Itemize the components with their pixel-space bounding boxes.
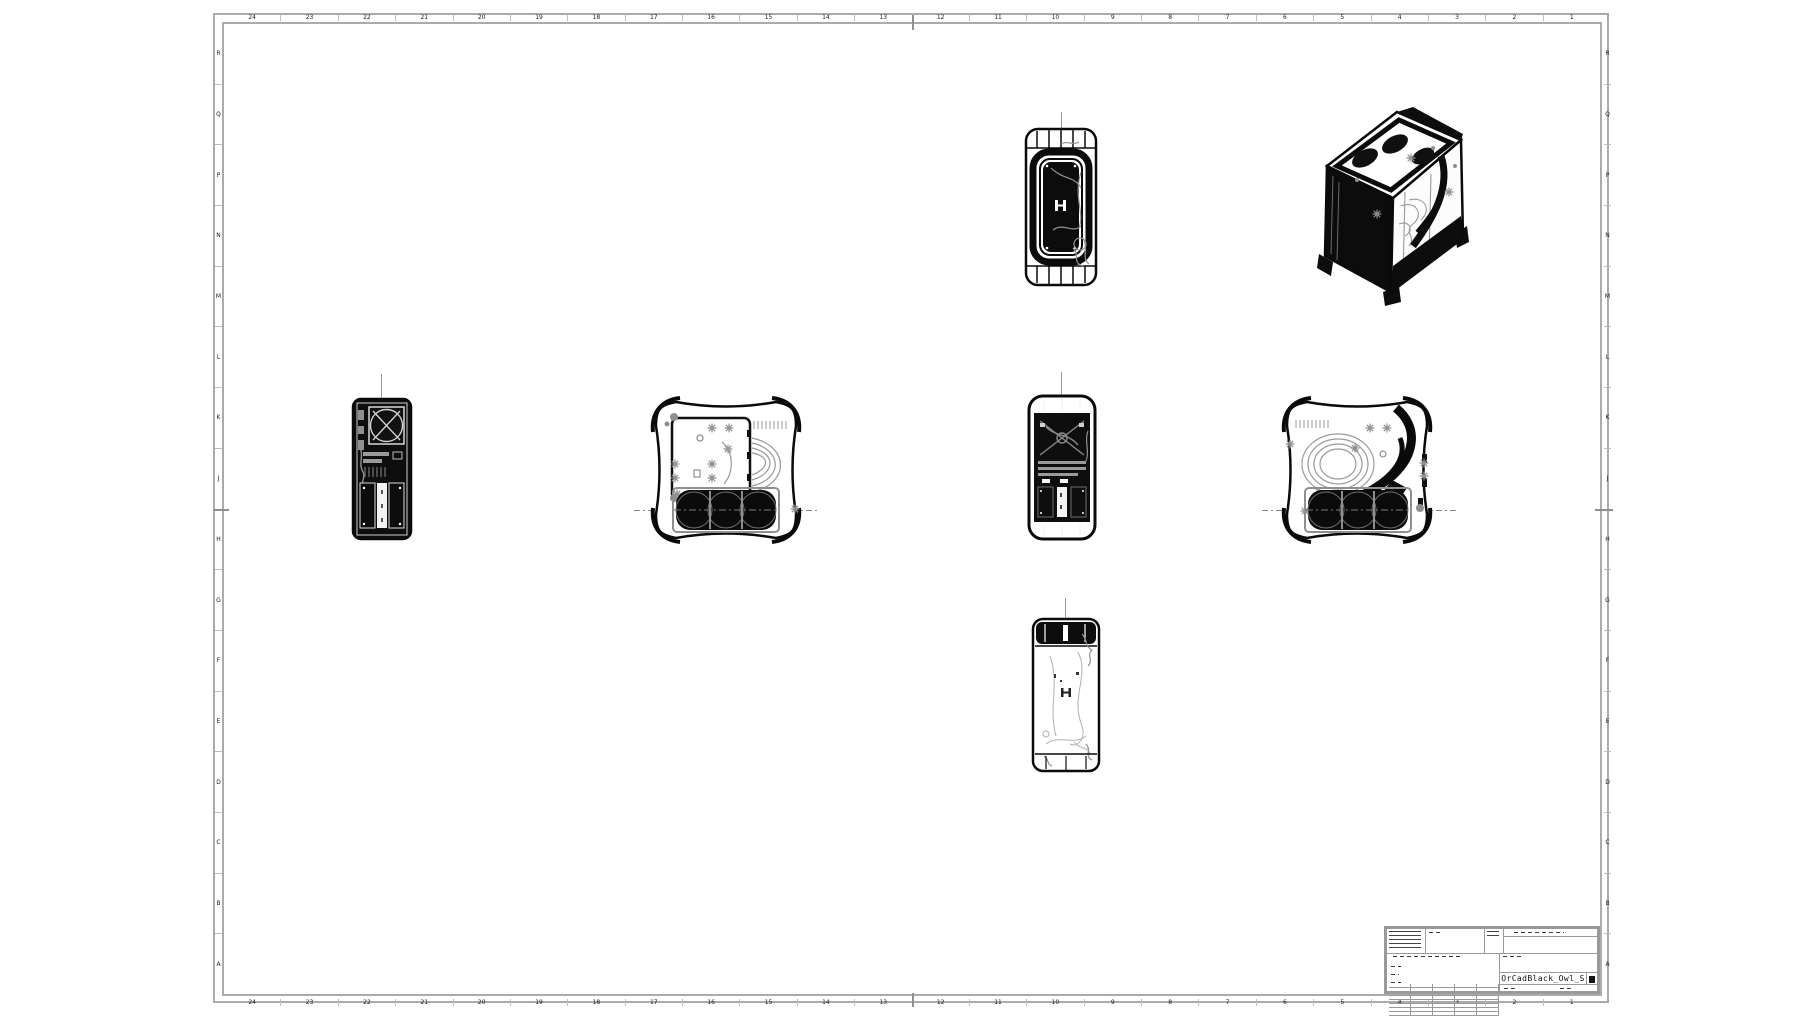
rear-fan: [369, 407, 404, 444]
zone-label: 24: [224, 999, 281, 1006]
zone-label: Q: [215, 85, 222, 146]
zone-label: 22: [339, 14, 396, 21]
zone-label: 7: [1199, 14, 1256, 21]
zone-label: P: [1604, 145, 1611, 206]
zone-label: E: [215, 692, 222, 753]
zone-label: 17: [626, 999, 683, 1006]
zone-label: P: [215, 145, 222, 206]
zone-label: E: [1604, 692, 1611, 753]
titleblock-material-cell: [1484, 928, 1504, 954]
zone-label: 7: [1199, 999, 1256, 1006]
zone-label: G: [215, 570, 222, 631]
zone-label: F: [215, 631, 222, 692]
zone-label: B: [1604, 874, 1611, 935]
titleblock-company-cell: [1503, 936, 1598, 954]
centering-mark-right: [1595, 509, 1613, 511]
zone-label: 6: [1257, 14, 1314, 21]
zone-label: 11: [970, 999, 1027, 1006]
zone-label: 16: [683, 999, 740, 1006]
zone-label: 1: [1544, 14, 1600, 21]
zone-label: 19: [511, 999, 568, 1006]
zone-label: K: [1604, 388, 1611, 449]
titleblock-approvals-cell: [1425, 928, 1485, 954]
titleblock-parts-table: [1386, 953, 1500, 992]
zone-label: N: [215, 206, 222, 267]
titleblock-notes-lines: [1389, 931, 1421, 951]
zone-label: 24: [224, 14, 281, 21]
zone-label: 23: [281, 14, 338, 21]
zone-label: 18: [568, 999, 625, 1006]
zone-label: D: [215, 752, 222, 813]
titleblock-notes-cell: [1386, 928, 1426, 954]
zone-label: 2: [1486, 14, 1543, 21]
zone-label: 5: [1314, 14, 1371, 21]
zone-label: L: [215, 327, 222, 388]
zone-label: 21: [396, 14, 453, 21]
zone-label: M: [1604, 267, 1611, 328]
zone-label: R: [1604, 24, 1611, 85]
zone-label: H: [1604, 510, 1611, 571]
zone-label: 5: [1314, 999, 1371, 1006]
zone-label: D: [1604, 752, 1611, 813]
zone-label: 19: [511, 14, 568, 21]
zone-label: 12: [913, 999, 970, 1006]
centering-mark-bottom: [912, 993, 914, 1007]
top-view: [1023, 126, 1099, 288]
bottom-view: [1030, 616, 1102, 774]
zone-label: L: [1604, 327, 1611, 388]
zone-label: 15: [740, 999, 797, 1006]
isometric-view: [1313, 96, 1469, 308]
front-view: [1026, 393, 1098, 542]
zone-label: 15: [740, 14, 797, 21]
front-lower-bays: [1038, 487, 1086, 517]
zone-label: 10: [1027, 14, 1084, 21]
rear-io-cutouts: [358, 410, 364, 450]
zone-label: 10: [1027, 999, 1084, 1006]
zone-label: R: [215, 24, 222, 85]
zone-label: 4: [1372, 14, 1429, 21]
fan-row: [1305, 488, 1411, 532]
zone-label: 23: [281, 999, 338, 1006]
zone-label: 9: [1085, 999, 1142, 1006]
rear-slot-panels: [360, 483, 404, 528]
zone-label: G: [1604, 570, 1611, 631]
titleblock-drawing-info-cell: [1499, 953, 1598, 973]
left-side-view: [650, 396, 802, 544]
zone-label: 18: [568, 14, 625, 21]
right-side-view: [1280, 396, 1434, 544]
zone-label: H: [215, 510, 222, 571]
zone-label: J: [215, 449, 222, 510]
zone-label: 6: [1257, 999, 1314, 1006]
title-block: OrCadBlack_Owl_S: [1384, 926, 1600, 994]
zone-label: 13: [855, 14, 912, 21]
zone-label: B: [215, 874, 222, 935]
zone-label: 20: [454, 999, 511, 1006]
centering-mark-left: [213, 509, 229, 511]
zone-label: 13: [855, 999, 912, 1006]
zone-label: A: [215, 934, 222, 994]
zone-label: 17: [626, 14, 683, 21]
zone-label: 11: [970, 14, 1027, 21]
zone-label: N: [1604, 206, 1611, 267]
centering-mark-top: [912, 15, 914, 30]
zone-label: 22: [339, 999, 396, 1006]
zone-label: Q: [1604, 85, 1611, 146]
zone-label: 12: [913, 14, 970, 21]
zone-label: 8: [1142, 14, 1199, 21]
zone-label: J: [1604, 449, 1611, 510]
zone-label: 14: [798, 999, 855, 1006]
zone-label: A: [1604, 934, 1611, 994]
zone-label: M: [215, 267, 222, 328]
rear-view: [350, 396, 414, 542]
zone-label: 21: [396, 999, 453, 1006]
zone-label: C: [215, 813, 222, 874]
fan-row: [673, 488, 779, 532]
zone-label: 3: [1429, 14, 1486, 21]
titleblock-scale-strip: [1499, 984, 1598, 992]
zone-label: 14: [798, 14, 855, 21]
zone-label: 9: [1085, 14, 1142, 21]
zone-label: 8: [1142, 999, 1199, 1006]
zone-label: 16: [683, 14, 740, 21]
zone-label: C: [1604, 813, 1611, 874]
drawing-title: OrCadBlack_Owl_S: [1500, 973, 1586, 984]
zone-label: K: [215, 388, 222, 449]
zone-label: 1: [1544, 999, 1600, 1006]
zone-label: F: [1604, 631, 1611, 692]
zone-label: 20: [454, 14, 511, 21]
